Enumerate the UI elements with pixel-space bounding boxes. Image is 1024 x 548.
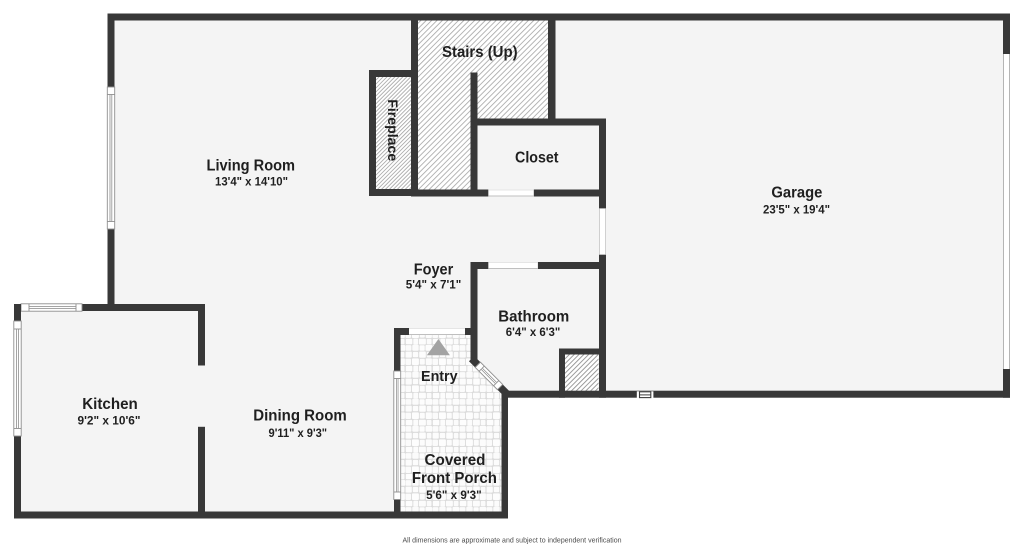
svg-text:Fireplace: Fireplace: [385, 99, 401, 161]
svg-text:13'4" x 14'10": 13'4" x 14'10": [215, 174, 288, 188]
svg-text:Front Porch: Front Porch: [412, 470, 497, 487]
svg-text:Closet: Closet: [515, 150, 559, 167]
svg-text:Covered: Covered: [425, 452, 486, 469]
svg-text:9'2" x 10'6": 9'2" x 10'6": [78, 414, 141, 428]
svg-text:6'4" x 6'3": 6'4" x 6'3": [506, 325, 561, 339]
svg-text:5'6" x 9'3": 5'6" x 9'3": [426, 488, 482, 502]
svg-text:Bathroom: Bathroom: [498, 308, 569, 325]
svg-text:5'4" x 7'1": 5'4" x 7'1": [406, 277, 462, 291]
svg-text:Entry: Entry: [421, 368, 458, 385]
svg-text:Dining Room: Dining Room: [253, 407, 347, 424]
svg-text:Garage: Garage: [771, 185, 822, 202]
svg-text:Foyer: Foyer: [414, 261, 454, 278]
svg-text:All dimensions are approximate: All dimensions are approximate and subje…: [402, 538, 621, 545]
svg-text:Stairs (Up): Stairs (Up): [442, 44, 518, 61]
svg-text:Kitchen: Kitchen: [82, 396, 138, 413]
svg-text:9'11" x 9'3": 9'11" x 9'3": [269, 426, 328, 440]
svg-text:Living Room: Living Room: [207, 158, 296, 175]
svg-text:23'5" x 19'4": 23'5" x 19'4": [763, 203, 830, 217]
